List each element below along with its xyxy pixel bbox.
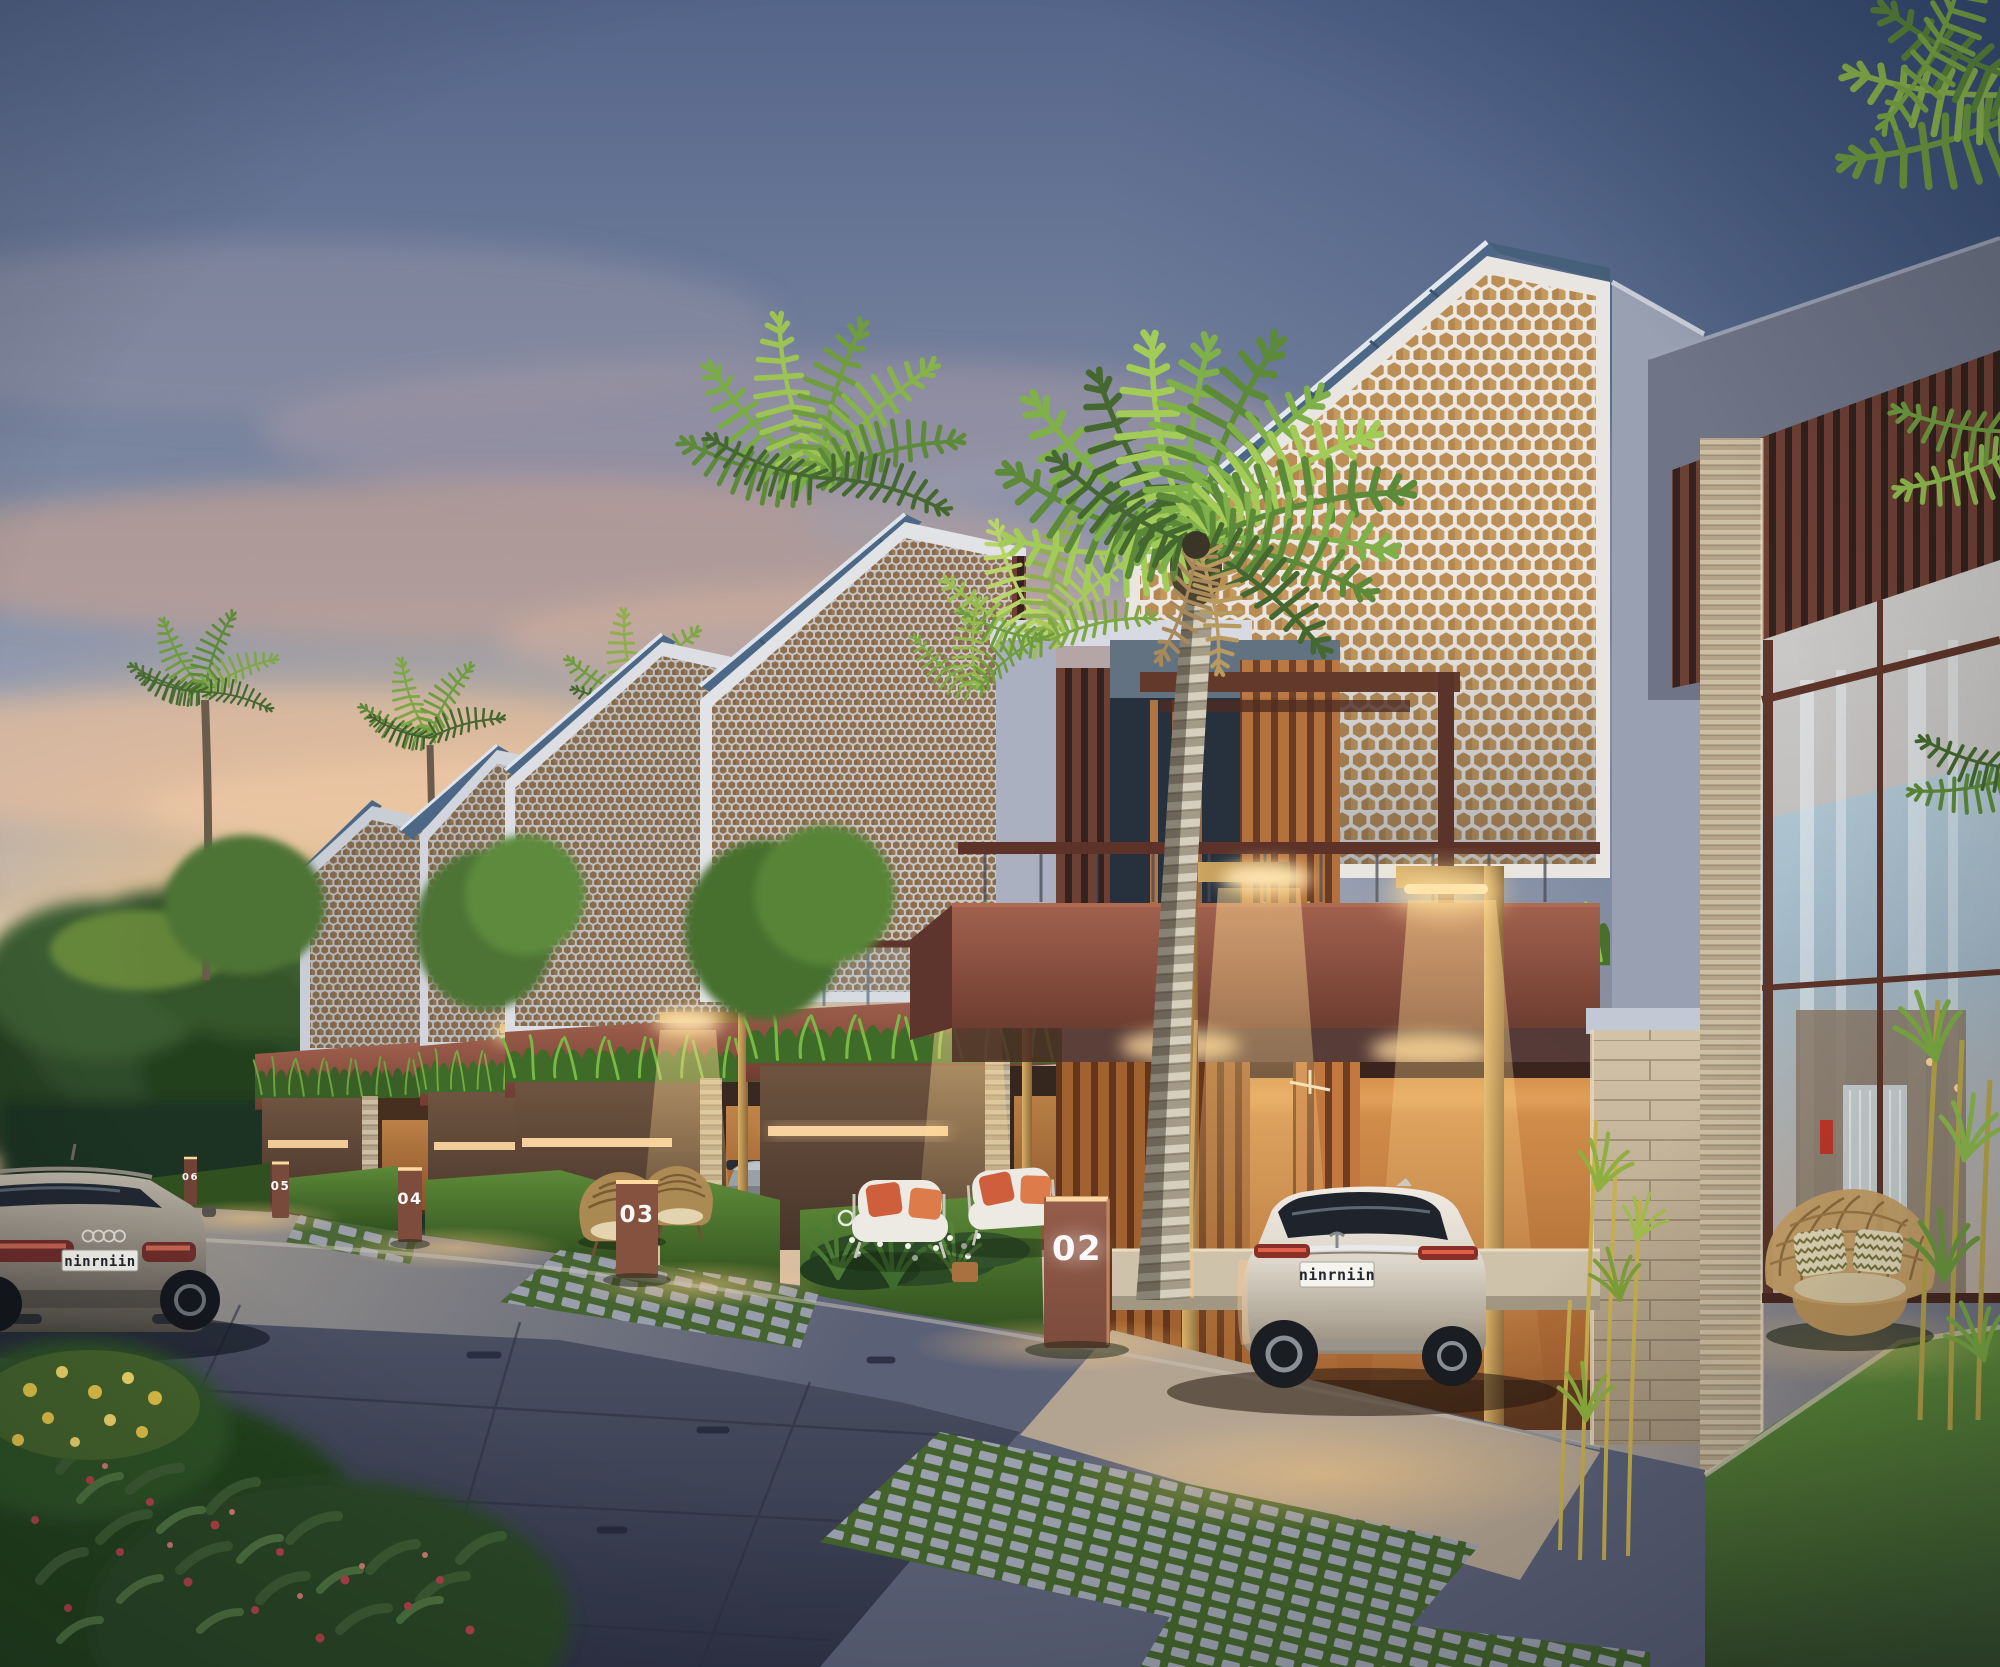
architectural-rendering: 06 05 04 03 02 xyxy=(0,0,2000,1667)
scene-canvas: 06 05 04 03 02 xyxy=(0,0,2000,1667)
vignette xyxy=(0,0,2000,1667)
